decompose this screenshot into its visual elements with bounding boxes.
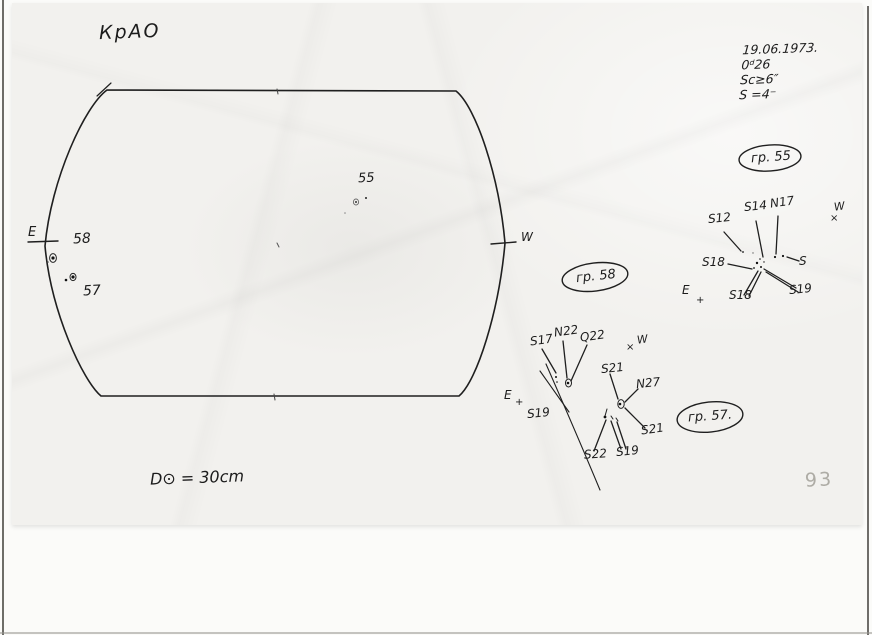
group58-title: гр. 58 (575, 268, 616, 285)
sunspot-57-pore (65, 279, 68, 282)
sunspot-55-speck (344, 212, 346, 214)
disk-center-mark (277, 243, 279, 247)
group57-label-s21-right: S21 (640, 421, 664, 436)
sunspot-57-umbra (71, 275, 74, 278)
group55-label-s12: S12 (707, 211, 731, 225)
disk-sunspots (47, 197, 367, 281)
sunspot-55-umbra (355, 201, 357, 203)
group57-west-cross-mark: × (626, 343, 634, 353)
group57-label-s19-bottom: S19 (615, 444, 639, 458)
group55-label-s14: S14 (743, 199, 767, 213)
group57-west-label: W (636, 333, 648, 345)
group55-east-plus-mark: + (696, 296, 704, 306)
group57-label-s21-top: S21 (600, 361, 624, 375)
group55-label-s-right: S (799, 255, 807, 267)
group55-east-label: E (682, 284, 690, 296)
bottom-center-tick (274, 394, 275, 400)
observation-info-block: 19.06.1973. 0ᵈ26 Sc≥6″ S =4⁻ (739, 40, 819, 103)
aperture-note: D⊙ = 30cm (150, 468, 245, 487)
disk-east-label: E (28, 226, 36, 239)
observatory-title: КрАО (99, 22, 161, 43)
group58-label-q22: Q22 (579, 328, 605, 343)
group58-east-plus-mark: + (515, 398, 523, 408)
sunspot-58-pore (47, 261, 49, 263)
group55-label-s19: S19 (788, 282, 812, 296)
east-limb-tick (28, 241, 58, 242)
group58-east-label: E (504, 389, 512, 401)
group55-label-s18-left: S18 (702, 256, 725, 268)
disk-group55-number: 55 (358, 172, 375, 186)
disk-west-label: W (521, 231, 533, 243)
group55-west-label: W (833, 200, 845, 212)
page-number: 93 (805, 470, 834, 490)
group57-label-s22: S22 (584, 447, 608, 461)
observation-s-value: S =4⁻ (739, 85, 816, 103)
disk-group58-number: 58 (73, 232, 92, 247)
observation-date: 19.06.1973. (742, 40, 819, 58)
sunspot-58-umbra (51, 256, 54, 259)
group55-west-cross-mark: × (830, 214, 838, 224)
group58-label-n22: N22 (553, 323, 579, 338)
fibril-line (546, 364, 600, 490)
group55-label-s18-bottom: S18 (729, 289, 752, 301)
scanned-observation-sheet: КрАО 19.06.1973. 0ᵈ26 Sc≥6″ S =4⁻ E W 58… (0, 0, 872, 635)
disk-group57-number: 57 (83, 284, 102, 299)
group55-label-n17: N17 (769, 194, 795, 209)
group57-title: гр. 57. (688, 408, 733, 424)
group58-label-s19-left: S19 (526, 406, 550, 420)
group57-label-n27: N27 (635, 376, 660, 390)
solar-disk-outline (28, 83, 516, 400)
west-limb-tick (491, 242, 516, 244)
sunspot-55-pore (365, 197, 367, 199)
group58-label-s17: S17 (529, 332, 553, 347)
group55-title: гр. 55 (751, 150, 792, 166)
